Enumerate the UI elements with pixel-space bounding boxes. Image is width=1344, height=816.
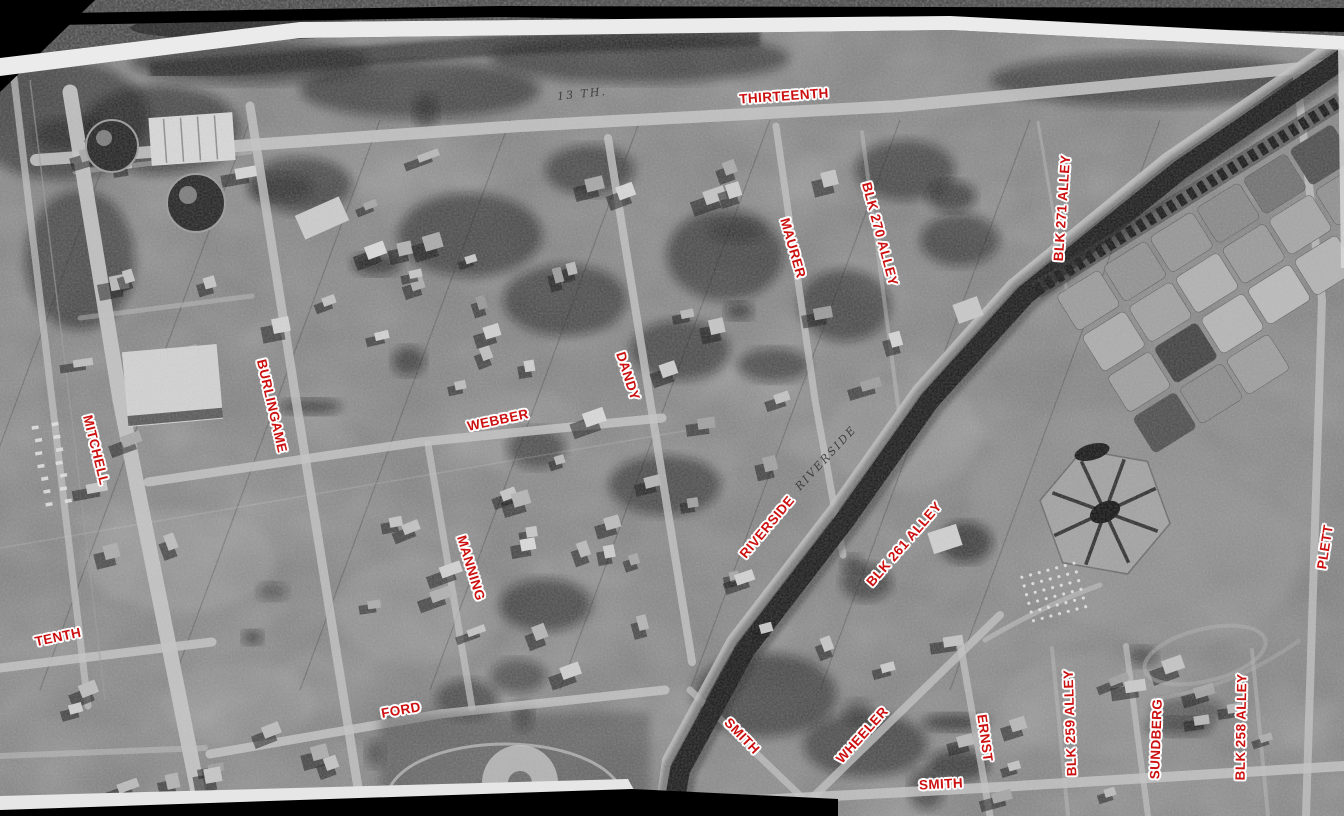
- aerial-photo: [0, 0, 1344, 816]
- map-viewport[interactable]: THIRTEENTHMITCHELLTENTHBURLINGAMEWEBBERM…: [0, 0, 1344, 816]
